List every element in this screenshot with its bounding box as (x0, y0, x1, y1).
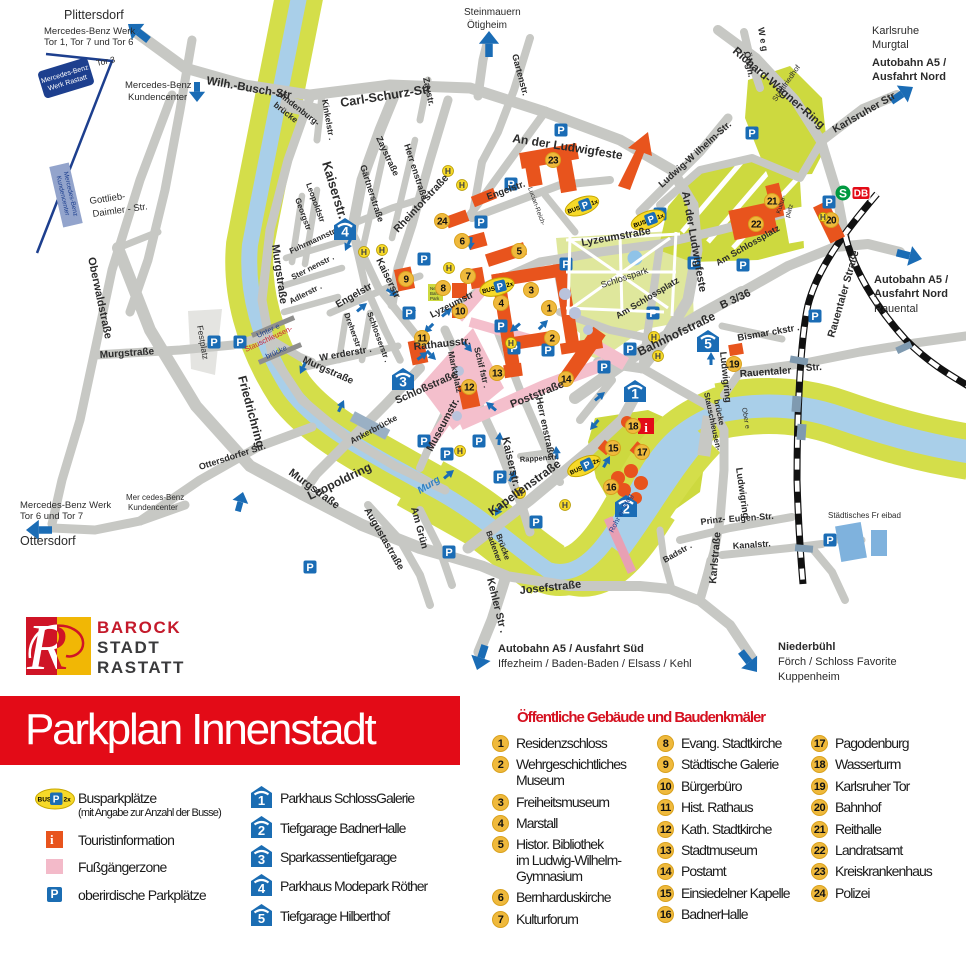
svg-text:1: 1 (258, 793, 265, 808)
svg-text:P: P (532, 517, 539, 529)
svg-text:4: 4 (258, 881, 266, 896)
svg-text:BUS: BUS (38, 797, 52, 804)
svg-text:Iffezheim / Baden-Baden / Elsa: Iffezheim / Baden-Baden / Elsass / Kehl (498, 658, 692, 670)
svg-text:P: P (748, 128, 755, 140)
svg-text:3: 3 (258, 852, 265, 867)
svg-text:Rauental: Rauental (874, 303, 918, 315)
svg-text:18: 18 (628, 422, 639, 433)
svg-text:Karlsruher Str: Karlsruher Str (831, 90, 898, 136)
svg-text:Plittersdorf: Plittersdorf (64, 8, 124, 22)
svg-text:17: 17 (637, 448, 648, 459)
svg-text:Murgtal: Murgtal (872, 39, 909, 51)
svg-text:Kundencenter: Kundencenter (128, 503, 178, 512)
svg-text:1: 1 (631, 387, 639, 402)
svg-text:P: P (210, 337, 217, 349)
svg-text:H: H (820, 212, 826, 222)
svg-text:H: H (361, 247, 367, 257)
svg-text:P: P (739, 260, 746, 272)
svg-text:Ötigheim: Ötigheim (467, 19, 507, 31)
svg-text:Tor 6 und Tor 7: Tor 6 und Tor 7 (20, 511, 83, 522)
svg-text:H: H (508, 338, 514, 348)
svg-text:Mer cedes-Benz: Mer cedes-Benz (126, 493, 184, 502)
svg-text:P: P (544, 345, 551, 357)
svg-text:Badstr .: Badstr . (661, 540, 693, 564)
svg-text:Ausfahrt Nord: Ausfahrt Nord (874, 288, 948, 300)
svg-text:12: 12 (464, 383, 475, 394)
svg-text:Autobahn A5 / Ausfahrt Süd: Autobahn A5 / Ausfahrt Süd (498, 643, 644, 655)
svg-text:H: H (445, 166, 451, 176)
svg-text:2x: 2x (64, 797, 72, 804)
svg-text:Rauentaler Straße: Rauentaler Straße (825, 249, 861, 339)
svg-text:P: P (826, 535, 833, 547)
svg-text:22: 22 (751, 220, 762, 231)
svg-text:3: 3 (399, 375, 407, 390)
svg-text:P: P (53, 795, 60, 806)
svg-text:4: 4 (341, 225, 349, 240)
svg-text:Karlsruhe: Karlsruhe (872, 25, 919, 37)
svg-text:P: P (825, 197, 832, 209)
svg-text:P: P (443, 449, 450, 461)
svg-text:15: 15 (608, 444, 619, 455)
svg-text:23: 23 (548, 156, 559, 167)
svg-text:Städtisches Fr eibad: Städtisches Fr eibad (828, 511, 901, 520)
svg-text:H: H (446, 263, 452, 273)
svg-text:P: P (236, 337, 243, 349)
svg-text:2: 2 (258, 823, 265, 838)
svg-text:P: P (496, 472, 503, 484)
svg-text:5: 5 (258, 911, 265, 926)
svg-text:P: P (405, 308, 412, 320)
svg-text:H: H (459, 180, 465, 190)
svg-text:Ausfahrt Nord: Ausfahrt Nord (872, 71, 946, 83)
svg-text:Tor 3: Tor 3 (95, 54, 116, 68)
svg-text:i: i (644, 420, 648, 435)
svg-text:Str.: Str. (805, 362, 822, 374)
svg-text:Ludwigring: Ludwigring (733, 467, 751, 519)
svg-text:H: H (655, 351, 661, 361)
svg-text:P: P (475, 436, 482, 448)
svg-text:Mercedes-Benz Werk: Mercedes-Benz Werk (20, 500, 111, 511)
svg-text:Autobahn A5 /: Autobahn A5 / (872, 57, 946, 69)
svg-text:P: P (557, 125, 564, 137)
svg-text:Tor 1, Tor 7 und Tor 6: Tor 1, Tor 7 und Tor 6 (44, 37, 133, 48)
svg-text:H: H (379, 245, 385, 255)
svg-text:P: P (497, 321, 504, 333)
svg-text:Murgstraße: Murgstraße (99, 346, 155, 361)
svg-text:Ottersdorf: Ottersdorf (20, 534, 76, 548)
svg-text:Steinmauern: Steinmauern (464, 7, 521, 18)
svg-text:P: P (600, 362, 607, 374)
svg-text:Kundencenter: Kundencenter (128, 92, 187, 103)
svg-text:P: P (649, 308, 656, 320)
svg-text:P: P (306, 562, 313, 574)
svg-text:Niederbühl: Niederbühl (778, 641, 835, 653)
svg-text:Karlstraße: Karlstraße (707, 531, 723, 584)
svg-text:13: 13 (492, 369, 503, 380)
svg-text:16: 16 (606, 483, 617, 494)
svg-text:S: S (839, 187, 847, 201)
svg-text:DB: DB (854, 189, 868, 200)
svg-text:24: 24 (437, 217, 448, 228)
svg-text:P: P (445, 547, 452, 559)
svg-text:P: P (420, 254, 427, 266)
svg-text:W e g: W e g (756, 27, 770, 52)
svg-text:Mercedes-Benz: Mercedes-Benz (125, 80, 192, 91)
svg-text:Förch / Schloss Favorite: Förch / Schloss Favorite (778, 656, 897, 668)
svg-text:Mercedes-Benz Werk: Mercedes-Benz Werk (44, 26, 135, 37)
svg-text:Kuppenheim: Kuppenheim (778, 671, 840, 683)
svg-text:P: P (626, 344, 633, 356)
svg-text:5: 5 (704, 337, 712, 352)
svg-text:Park: Park (430, 296, 440, 301)
svg-text:Rauentaler: Rauentaler (739, 365, 791, 380)
svg-text:P: P (811, 311, 818, 323)
svg-text:H: H (562, 500, 568, 510)
svg-text:Autobahn A5 /: Autobahn A5 / (874, 274, 948, 286)
svg-text:P: P (477, 217, 484, 229)
svg-text:Bismar ckstr .: Bismar ckstr . (737, 322, 801, 344)
svg-text:H: H (457, 446, 463, 456)
